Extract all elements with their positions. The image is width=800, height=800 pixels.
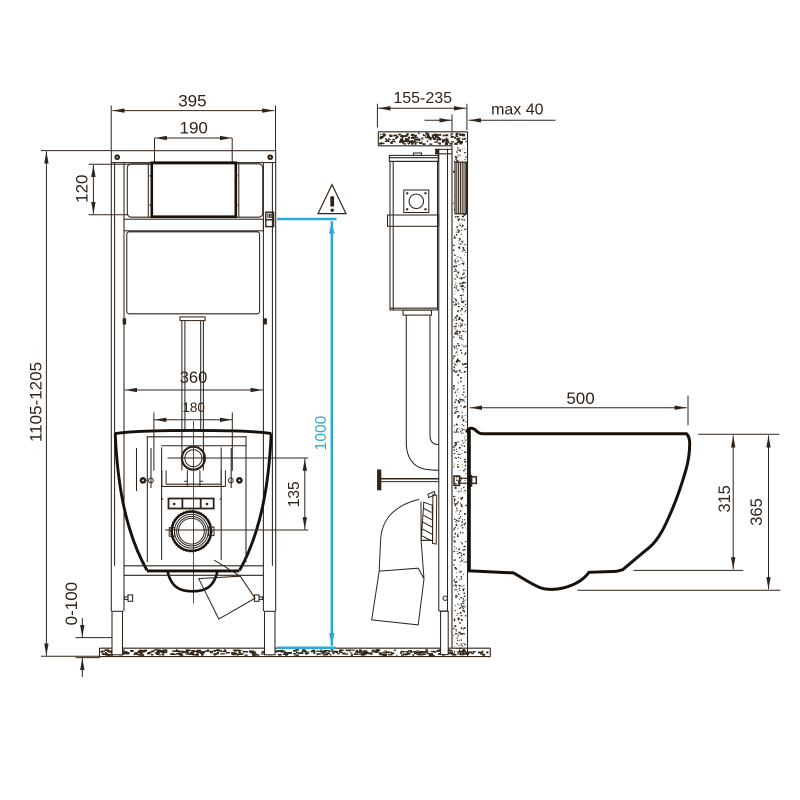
svg-text:0-100: 0-100 bbox=[62, 582, 81, 625]
svg-text:1105-1205: 1105-1205 bbox=[26, 362, 45, 442]
svg-text:395: 395 bbox=[178, 92, 206, 111]
svg-text:360: 360 bbox=[180, 369, 208, 387]
svg-text:120: 120 bbox=[73, 175, 92, 203]
svg-text:365: 365 bbox=[748, 498, 766, 526]
svg-text:500: 500 bbox=[566, 389, 594, 408]
svg-text:1000: 1000 bbox=[313, 415, 330, 450]
svg-text:135: 135 bbox=[286, 481, 303, 507]
svg-text:155-235: 155-235 bbox=[393, 90, 452, 107]
svg-text:max 40: max 40 bbox=[491, 102, 544, 119]
svg-text:315: 315 bbox=[716, 485, 734, 513]
svg-text:180: 180 bbox=[182, 400, 205, 415]
svg-text:190: 190 bbox=[180, 119, 208, 138]
